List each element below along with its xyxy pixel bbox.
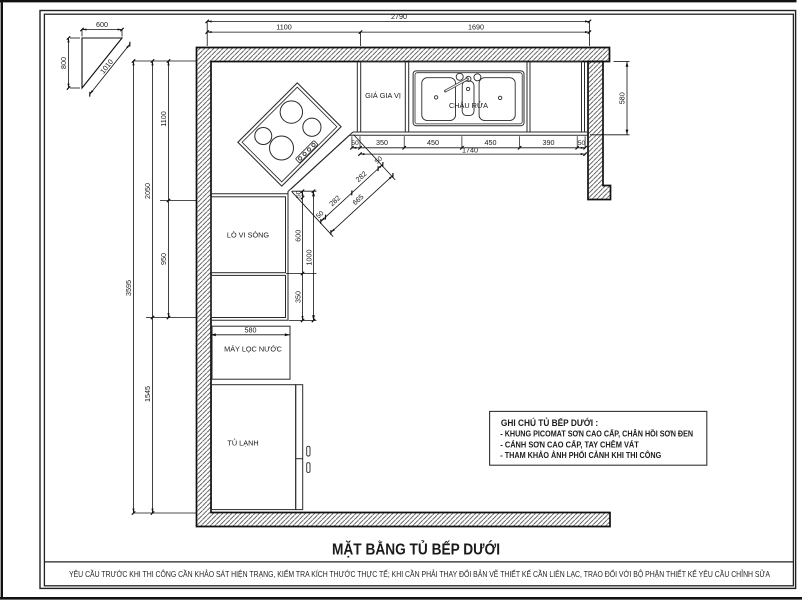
svg-text:1690: 1690 (468, 23, 484, 32)
svg-text:1100: 1100 (159, 111, 168, 126)
svg-text:2050: 2050 (143, 183, 152, 199)
svg-text:YÊU CẦU TRƯỚC KHI THI CÔNG CẦN: YÊU CẦU TRƯỚC KHI THI CÔNG CẦN KHẢO SÁT … (69, 568, 770, 579)
svg-text:50: 50 (351, 140, 359, 147)
svg-text:600: 600 (96, 20, 108, 29)
svg-text:390: 390 (543, 138, 555, 147)
svg-text:1100: 1100 (276, 23, 291, 32)
svg-text:CHẬU RỬA: CHẬU RỬA (449, 101, 488, 110)
svg-text:350: 350 (376, 138, 388, 147)
svg-text:1545: 1545 (143, 386, 152, 402)
svg-text:LÒ VI SÓNG: LÒ VI SÓNG (227, 231, 269, 240)
svg-text:TỦ LẠNH: TỦ LẠNH (227, 438, 258, 447)
svg-text:1000: 1000 (304, 250, 313, 266)
svg-text:- THAM KHẢO ẢNH PHỐI CẢNH KHI: - THAM KHẢO ẢNH PHỐI CẢNH KHI THI CÔNG (500, 450, 661, 460)
svg-text:450: 450 (485, 138, 497, 147)
svg-text:GIÁ GIA VỊ: GIÁ GIA VỊ (365, 91, 401, 100)
svg-text:600: 600 (293, 230, 302, 242)
svg-text:800: 800 (59, 57, 68, 69)
svg-text:GHI CHÚ TỦ BẾP DƯỚI :: GHI CHÚ TỦ BẾP DƯỚI : (501, 417, 598, 428)
svg-text:MÁY LỌC NƯỚC: MÁY LỌC NƯỚC (224, 344, 282, 353)
svg-text:3595: 3595 (124, 280, 133, 296)
svg-text:- KHUNG PICOMAT SƠN CAO CẤP, C: - KHUNG PICOMAT SƠN CAO CẤP, CHÂN HỒI SƠ… (500, 428, 693, 438)
svg-text:450: 450 (427, 138, 439, 147)
svg-text:2790: 2790 (391, 12, 407, 21)
svg-text:350: 350 (293, 291, 302, 303)
svg-text:MẶT BẰNG TỦ BẾP DƯỚI: MẶT BẰNG TỦ BẾP DƯỚI (332, 541, 500, 559)
svg-text:50: 50 (578, 140, 586, 147)
svg-text:- CÁNH SƠN CAO CẤP, TAY CHÊM V: - CÁNH SƠN CAO CẤP, TAY CHÊM VÁT (500, 439, 639, 449)
svg-text:1740: 1740 (462, 146, 478, 155)
svg-text:950: 950 (159, 253, 168, 265)
svg-text:580: 580 (245, 326, 257, 335)
svg-text:580: 580 (617, 92, 626, 104)
